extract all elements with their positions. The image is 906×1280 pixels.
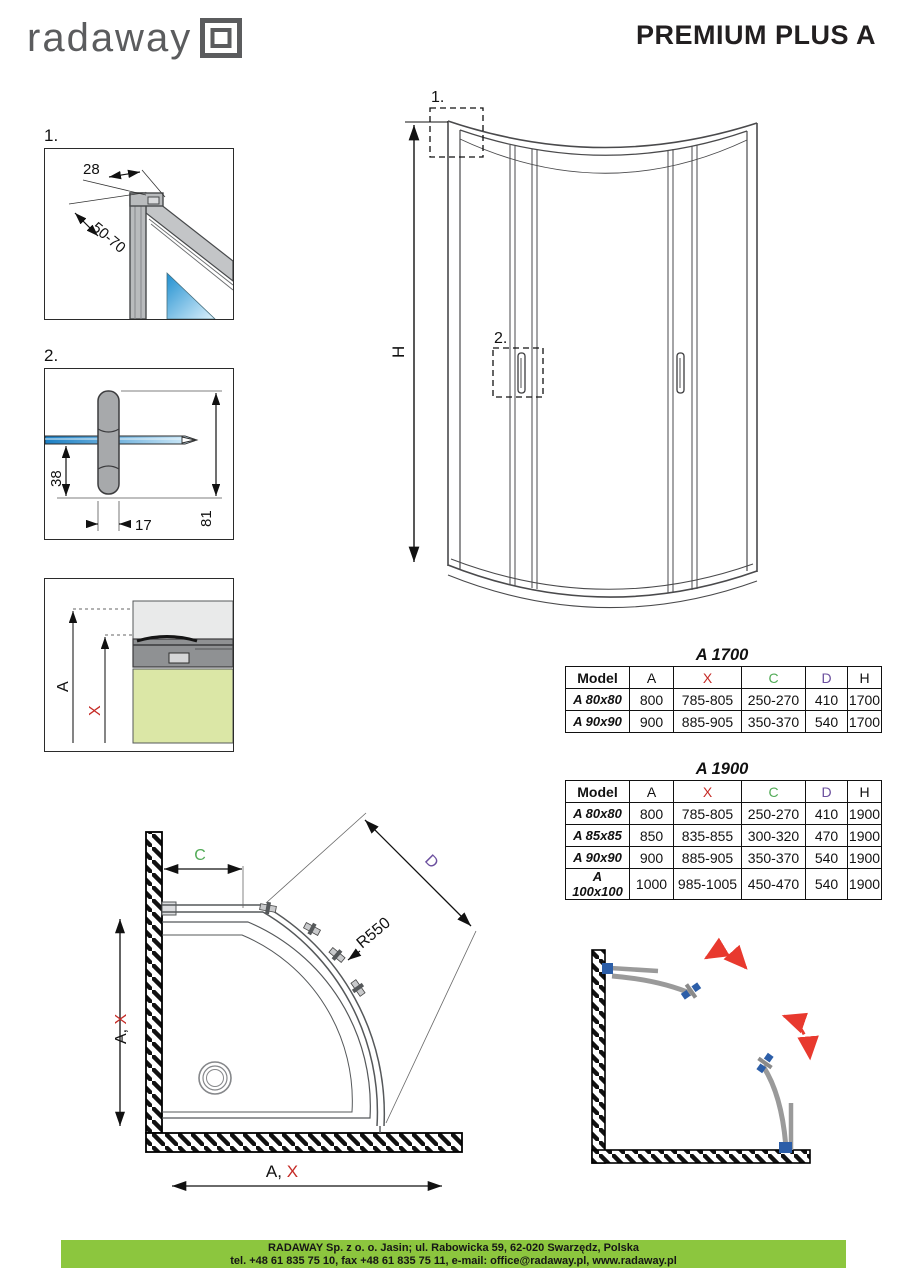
detail-3-box: A X — [44, 578, 234, 752]
cell-d: 470 — [806, 825, 848, 847]
dim-front-ax-text: A, X — [266, 1162, 298, 1181]
dim-front-ax: A, X — [172, 1162, 442, 1186]
enclosure-plan-drawing: C D R550 A, X A, X — [100, 808, 500, 1222]
swing-arrow-top — [706, 954, 746, 968]
cell-a: 800 — [630, 803, 674, 825]
glass-pane — [45, 436, 197, 444]
cell-h: 1900 — [848, 803, 882, 825]
detail-2-box: 38 81 17 — [44, 368, 234, 540]
door-rollers — [259, 901, 367, 998]
cell-x: 835-855 — [674, 825, 742, 847]
dim-c-text: C — [194, 847, 206, 864]
cell-x: 985-1005 — [674, 869, 742, 900]
cell-x: 785-805 — [674, 803, 742, 825]
door-opening-drawing — [560, 920, 906, 1210]
cell-a: 900 — [630, 711, 674, 733]
handle-detail-drawing: 38 81 17 — [45, 369, 233, 539]
footer-contacts: tel. +48 61 835 75 10, fax +48 61 835 75… — [61, 1255, 846, 1268]
table-row: A 100x100 1000 985-1005 450-470 540 1900 — [566, 869, 882, 900]
table-row: A 90x90 900 885-905 350-370 540 1700 — [566, 711, 882, 733]
marker-1-text: 1. — [431, 89, 444, 106]
footer-bar: RADAWAY Sp. z o. o. Jasin; ul. Rabowicka… — [61, 1240, 846, 1268]
radius-callout: R550 — [348, 914, 394, 960]
cell-model: A 85x85 — [566, 825, 630, 847]
cell-h: 1900 — [848, 869, 882, 900]
frame — [448, 121, 757, 608]
table-a1700-title: A 1700 — [565, 646, 879, 665]
section-geometry — [133, 601, 233, 743]
dim-38-text: 38 — [48, 470, 65, 487]
wall-profile-drawing: 28 50-70 — [45, 149, 233, 319]
cell-d: 540 — [806, 847, 848, 869]
walls — [146, 832, 462, 1152]
cell-x: 885-905 — [674, 847, 742, 869]
col-model: Model — [566, 667, 630, 689]
dim-a-text: A — [55, 681, 72, 692]
cell-x: 885-905 — [674, 711, 742, 733]
datasheet-page: radaway PREMIUM PLUS A 1. — [0, 0, 906, 1280]
cell-h: 1900 — [848, 847, 882, 869]
cell-model: A 80x80 — [566, 803, 630, 825]
table-row: A 80x80 800 785-805 250-270 410 1700 — [566, 689, 882, 711]
table-row: A 80x80 800 785-805 250-270 410 1900 — [566, 803, 882, 825]
dims: 38 81 17 — [48, 391, 222, 534]
cell-x: 785-805 — [674, 689, 742, 711]
tray-and-track — [162, 902, 384, 1133]
hinge-handle — [779, 1142, 792, 1153]
col-h: H — [848, 781, 882, 803]
radius-text: R550 — [354, 914, 394, 952]
col-x: X — [674, 667, 742, 689]
hinge-handle — [602, 963, 613, 974]
profile-geometry — [130, 193, 233, 319]
col-c: C — [742, 667, 806, 689]
dim-side-ax-text: A, X — [113, 1013, 130, 1044]
dim-c: C — [164, 847, 243, 908]
logo-square-inner — [211, 28, 232, 48]
detail-1-label: 1. — [44, 126, 58, 146]
tray-section-drawing: A X — [45, 579, 233, 751]
col-h: H — [848, 667, 882, 689]
cell-model: A 90x90 — [566, 711, 630, 733]
col-a: A — [630, 781, 674, 803]
dim-28: 28 — [83, 161, 165, 197]
col-a: A — [630, 667, 674, 689]
logo-square-icon — [200, 18, 242, 58]
cell-c: 450-470 — [742, 869, 806, 900]
col-model: Model — [566, 781, 630, 803]
cell-d: 540 — [806, 711, 848, 733]
plan-view: C D R550 A, X A, X — [100, 808, 500, 1222]
dim-a: A — [55, 609, 133, 743]
door-top — [602, 963, 704, 1003]
cell-h: 1900 — [848, 825, 882, 847]
table-row: A 85x85 850 835-855 300-320 470 1900 — [566, 825, 882, 847]
cell-d: 540 — [806, 869, 848, 900]
cell-h: 1700 — [848, 711, 882, 733]
dim-h: H — [389, 122, 448, 562]
enclosure-front-drawing: H 1. 2. — [385, 85, 770, 615]
door-bottom — [753, 1050, 792, 1153]
cell-model: A 100x100 — [566, 869, 630, 900]
col-c: C — [742, 781, 806, 803]
detail-2-label: 2. — [44, 346, 58, 366]
cell-d: 410 — [806, 689, 848, 711]
dim-81-text: 81 — [198, 510, 215, 527]
swing-arrow-bottom — [784, 1016, 810, 1058]
dim-x-text: X — [87, 705, 104, 716]
table-a1900: Model A X C D H A 80x80 800 785-805 250-… — [565, 780, 882, 900]
table-header-row: Model A X C D H — [566, 667, 882, 689]
cell-a: 800 — [630, 689, 674, 711]
dim-d: D — [266, 813, 476, 1123]
dim-x: X — [87, 635, 133, 743]
dimension-table-a1700: Model A X C D H A 80x80 800 785-805 250-… — [565, 666, 882, 733]
cell-c: 250-270 — [742, 689, 806, 711]
cell-a: 1000 — [630, 869, 674, 900]
cell-a: 900 — [630, 847, 674, 869]
cell-h: 1700 — [848, 689, 882, 711]
col-d: D — [806, 667, 848, 689]
cell-c: 350-370 — [742, 847, 806, 869]
page-title: PREMIUM PLUS A — [480, 20, 876, 51]
opening-diagram — [560, 920, 906, 1210]
walls — [592, 950, 810, 1163]
dim-d-text: D — [421, 852, 441, 872]
detail-1-box: 28 50-70 — [44, 148, 234, 320]
cell-model: A 80x80 — [566, 689, 630, 711]
dim-h-text: H — [389, 346, 408, 358]
col-x: X — [674, 781, 742, 803]
cell-c: 350-370 — [742, 711, 806, 733]
table-a1700: Model A X C D H A 80x80 800 785-805 250-… — [565, 666, 882, 733]
dim-50-70-text: 50-70 — [88, 219, 128, 257]
dim-side-ax: A, X — [113, 919, 130, 1126]
dim-28-text: 28 — [83, 161, 100, 178]
table-row: A 90x90 900 885-905 350-370 540 1900 — [566, 847, 882, 869]
cell-d: 410 — [806, 803, 848, 825]
footer-address: RADAWAY Sp. z o. o. Jasin; ul. Rabowicka… — [61, 1242, 846, 1255]
table-header-row: Model A X C D H — [566, 781, 882, 803]
dim-17-text: 17 — [135, 517, 152, 534]
logo-text: radaway — [27, 16, 192, 60]
cell-c: 250-270 — [742, 803, 806, 825]
table-a1900-title: A 1900 — [565, 760, 879, 779]
col-d: D — [806, 781, 848, 803]
marker-2-text: 2. — [494, 330, 507, 347]
handle-knob — [98, 391, 119, 494]
cell-a: 850 — [630, 825, 674, 847]
cell-c: 300-320 — [742, 825, 806, 847]
radaway-logo: radaway — [27, 16, 242, 60]
front-view: H 1. 2. — [385, 85, 770, 615]
cell-model: A 90x90 — [566, 847, 630, 869]
dimension-table-a1900: Model A X C D H A 80x80 800 785-805 250-… — [565, 780, 882, 900]
